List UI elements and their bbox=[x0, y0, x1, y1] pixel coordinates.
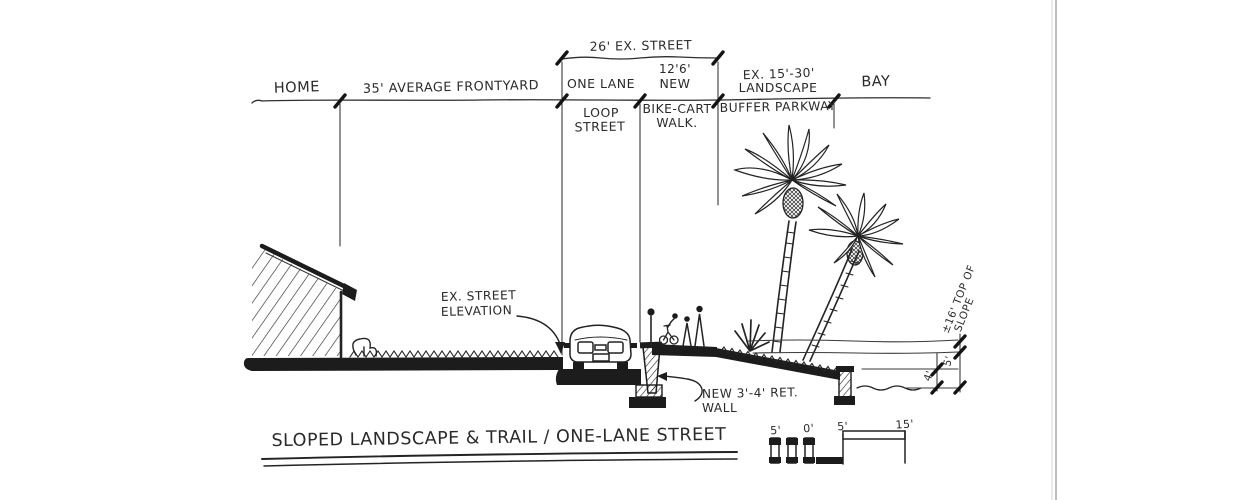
dimension-lines bbox=[252, 52, 930, 355]
car bbox=[564, 325, 637, 370]
street-pavement bbox=[556, 369, 641, 385]
annotation-ret-wall: NEW 3'-4' RET. WALL bbox=[657, 372, 798, 415]
drawing-title: SLOPED LANDSCAPE & TRAIL / ONE-LANE STRE… bbox=[262, 425, 737, 466]
grass-frontyard bbox=[350, 351, 558, 357]
scan-edge-line bbox=[1052, 0, 1056, 500]
scale-5-left: 5' bbox=[770, 424, 782, 438]
house-section bbox=[252, 246, 357, 357]
frontyard-ground bbox=[244, 357, 563, 371]
label-new: NEW bbox=[659, 76, 690, 91]
scale-bar: 5' 0' 5' 15' bbox=[769, 417, 914, 464]
label-ex-street-elev-2: ELEVATION bbox=[441, 303, 513, 319]
shrub-frontyard bbox=[353, 338, 377, 356]
palm-tree-2 bbox=[803, 193, 903, 361]
retaining-wall bbox=[629, 308, 666, 408]
label-bay: BAY bbox=[861, 74, 891, 91]
title-text: SLOPED LANDSCAPE & TRAIL / ONE-LANE STRE… bbox=[271, 425, 726, 451]
label-ex-range: EX. 15'-30' bbox=[743, 66, 815, 83]
bay-wall bbox=[834, 366, 921, 405]
scale-0: 0' bbox=[803, 422, 815, 436]
label-buffer-parkway: BUFFER PARKWAY bbox=[720, 99, 837, 115]
shrub-agave bbox=[735, 320, 769, 351]
label-dim-5ft: 5' bbox=[941, 354, 955, 367]
section-sketch: HOME 35' AVERAGE FRONTYARD 26' EX. STREE… bbox=[0, 0, 1235, 500]
cyclist-figure bbox=[660, 313, 679, 344]
label-ex-street-width: 26' EX. STREET bbox=[590, 37, 693, 54]
label-home: HOME bbox=[274, 79, 321, 97]
pedestrian-figure-tall bbox=[695, 306, 704, 346]
pedestrian-figure bbox=[683, 316, 691, 346]
scale-posts bbox=[769, 438, 815, 463]
label-one-lane: ONE LANE bbox=[567, 76, 635, 91]
leader-arrowhead bbox=[657, 372, 667, 381]
annotation-street-elevation: EX. STREET ELEVATION bbox=[441, 288, 565, 354]
label-bike-cart: BIKE-CART bbox=[643, 102, 712, 116]
label-ex-street-elev-1: EX. STREET bbox=[441, 288, 517, 304]
label-frontyard: 35' AVERAGE FRONTYARD bbox=[363, 78, 539, 97]
label-new-width: 12'6' bbox=[659, 62, 691, 76]
street-light-pole bbox=[647, 308, 654, 346]
label-ret-wall-1: NEW 3'-4' RET. bbox=[702, 385, 798, 401]
label-loop-street: STREET bbox=[574, 119, 625, 135]
scale-15: 15' bbox=[895, 417, 914, 431]
label-loop: LOOP bbox=[583, 105, 619, 120]
label-landscape: LANDSCAPE bbox=[739, 81, 818, 95]
people bbox=[660, 306, 705, 346]
leader-arrowhead bbox=[555, 342, 565, 354]
label-walk: WALK. bbox=[656, 116, 697, 130]
label-ret-wall-2: WALL bbox=[702, 401, 737, 415]
slope-height-dimensions: ±16' TOP OF SLOPE 5' 4' bbox=[748, 263, 988, 393]
dimension-labels: HOME 35' AVERAGE FRONTYARD 26' EX. STREE… bbox=[274, 37, 891, 134]
sketch-canvas: HOME 35' AVERAGE FRONTYARD 26' EX. STREE… bbox=[0, 0, 1235, 500]
